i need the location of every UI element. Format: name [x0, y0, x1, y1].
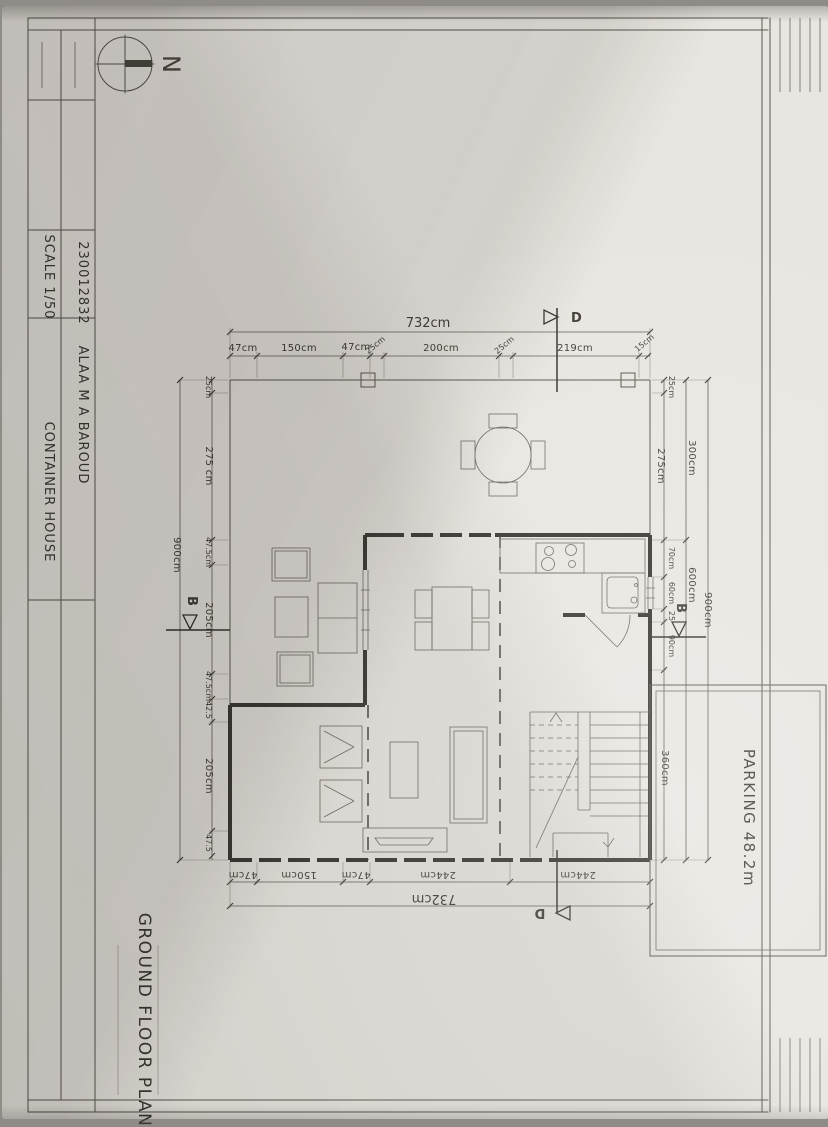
kitchen-door-swing [585, 615, 630, 647]
dim: 90cm [667, 635, 676, 658]
north-compass-icon: N [96, 35, 185, 93]
north-label: N [157, 55, 185, 73]
dim: 25cm [364, 334, 387, 355]
dim: 47cm [228, 343, 257, 354]
dim: 600cm [686, 567, 697, 603]
dim: 15cm [633, 332, 656, 353]
tv-unit [363, 828, 447, 852]
section-b-label: B [184, 596, 199, 606]
kitchen-sink [607, 577, 638, 608]
dim: 47.5cm [204, 671, 213, 701]
section-b-label: B [673, 603, 688, 613]
window-right-wall [646, 577, 655, 609]
dim: 47.5 [204, 834, 213, 852]
dim: 47cm [228, 869, 257, 880]
dim-top-total: 732cm [406, 316, 451, 331]
stair-treads-above-cut [530, 725, 578, 790]
drawing-title-text: GROUND FLOOR PLAN [134, 913, 154, 1127]
coffee-table [390, 742, 418, 798]
dim: 47.5cm [204, 537, 213, 567]
dim-parking-width: 360cm [659, 750, 670, 786]
corner-hatch-top-right [780, 18, 820, 92]
dimensions-top: 732cm 47cm 150cm 47cm 25cm 200cm 25cm 21… [227, 316, 656, 378]
section-marker-b-right: B [650, 603, 706, 637]
dim-right-total: 900cm [702, 592, 713, 628]
walls [230, 535, 655, 860]
dim: 25cm [493, 334, 516, 355]
kitchen-fixtures [500, 539, 645, 613]
project-name: CONTAINER HOUSE [41, 422, 56, 563]
compass-east-bar [125, 60, 152, 67]
title-block-tick-marks [42, 42, 75, 88]
parking-label: PARKING 48.2m [740, 749, 758, 887]
student-id: 230012832 [75, 241, 90, 324]
paper-sheet: 230012832 SCALE 1/50 ALAA M A BAROUD CON… [2, 6, 828, 1119]
stair-break-line [536, 757, 578, 848]
living-room-furniture [320, 726, 487, 852]
dim: 70cm [667, 547, 676, 570]
section-d-label: D [534, 905, 545, 920]
dimensions-left: 25cm 275 cm 47.5cm 205cm 47.5cm 42.5 205… [171, 376, 228, 863]
dim: 42.5 [204, 701, 213, 719]
dim: 300cm [686, 440, 697, 476]
dimensions-right: 25cm 275cm 70cm 60cm 25 90cm 360cm 300cm… [652, 376, 713, 863]
stair-up-arrow [550, 713, 562, 722]
photo-background: 230012832 SCALE 1/50 ALAA M A BAROUD CON… [0, 0, 828, 1127]
corner-hatch-bottom-right [780, 1038, 820, 1112]
scale-label: SCALE 1/50 [41, 234, 56, 319]
dim-left-total: 900cm [171, 537, 182, 573]
parking-area: PARKING 48.2m [650, 685, 826, 956]
window-left-wall [361, 570, 370, 650]
dim: 244cm [420, 869, 456, 880]
dim: 25cm [667, 376, 676, 399]
dim: 150cm [281, 343, 317, 354]
dim: 60cm [667, 582, 676, 605]
stair-treads [590, 725, 648, 816]
dim: 205cm [203, 602, 214, 638]
dimensions-bottom: 47cm 150cm 47cm 244cm 244cm 732cm [227, 862, 653, 909]
dim: 275 cm [203, 446, 214, 485]
section-d-label: D [571, 311, 582, 326]
author-name: ALAA M A BAROUD [75, 346, 90, 485]
dim-bottom-total: 732cm [412, 891, 457, 906]
section-marker-b-left: B [166, 596, 230, 630]
dim: 25cm [204, 376, 213, 399]
dining-table [432, 587, 472, 650]
staircase [530, 712, 650, 857]
dim: 219cm [557, 343, 593, 354]
outdoor-seating [272, 548, 357, 686]
dim: 200cm [423, 343, 459, 354]
dining-set [415, 587, 489, 650]
patio-round-table [461, 414, 545, 496]
dim: 275cm [655, 448, 666, 484]
sofa [450, 727, 487, 823]
dim: 205cm [203, 758, 214, 794]
dim: 47cm [341, 869, 370, 880]
drawing-title: GROUND FLOOR PLAN [118, 913, 158, 1127]
dim: 150cm [281, 869, 317, 880]
dim: 244cm [560, 869, 596, 880]
stair-arrowhead [603, 838, 614, 847]
floor-plan-drawing: 230012832 SCALE 1/50 ALAA M A BAROUD CON… [0, 0, 828, 1127]
